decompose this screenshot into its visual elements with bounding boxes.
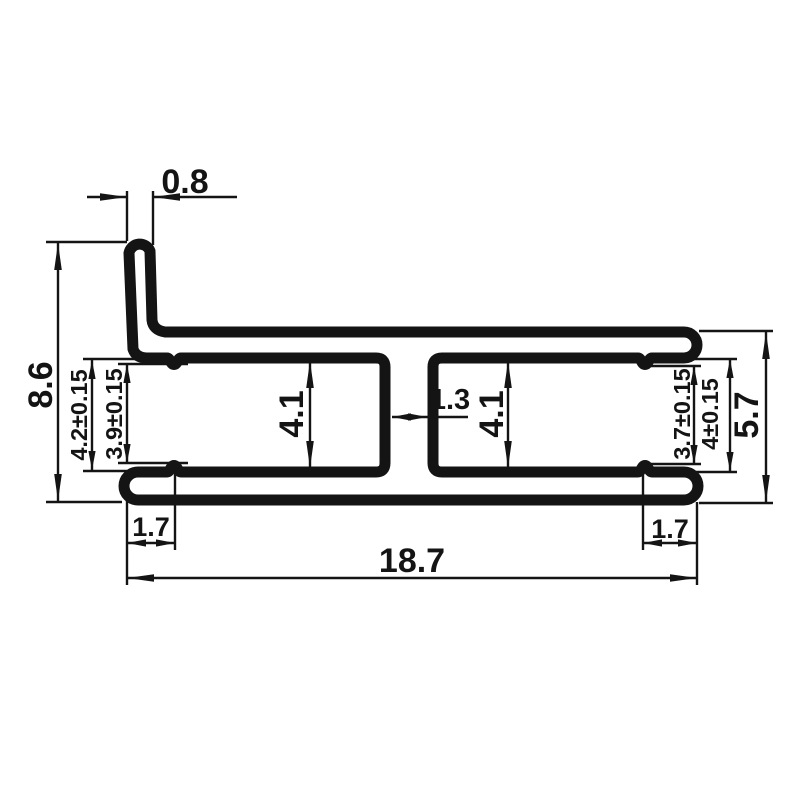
dimension-right-slot-inner: 3.7±0.15 [669,366,695,464]
dimension-left-cavity-height: 4.1 [273,361,311,468]
dimension-flange-width: 0.8 [87,163,237,201]
dimension-label: 4±0.15 [697,378,723,450]
profile-drawing-canvas: 0.8 8.6 4.2±0.15 3.9±0.15 4.1 1.3 4.1 3.… [0,0,800,800]
dimension-label: 3.9±0.15 [101,368,127,459]
dimension-label: 4.1 [273,390,311,437]
dimension-label: 1.3 [430,384,470,416]
dimension-total-height: 8.6 [22,243,60,501]
dimension-right-cavity-height: 4.1 [473,361,511,468]
dimension-label: 18.7 [379,542,445,580]
dimension-right-ridge-inset: 1.7 [643,514,697,544]
dimension-label: 3.7±0.15 [669,368,695,459]
dimension-label: 4.1 [473,390,511,437]
dimension-body-height: 5.7 [728,332,766,502]
dimension-left-ridge-inset: 1.7 [127,512,175,543]
dimension-left-slot-entry: 4.2±0.15 [66,360,92,470]
dimension-label: 1.7 [651,514,689,544]
dimension-right-slot-entry: 4±0.15 [697,359,730,471]
profile-outline [124,244,698,500]
dimension-left-slot-inner: 3.9±0.15 [101,364,127,463]
dimension-label: 1.7 [132,512,170,542]
dimension-total-width: 18.7 [127,542,697,580]
dimension-label: 8.6 [22,361,60,408]
dimension-label: 0.8 [161,163,208,201]
dimension-label: 5.7 [728,391,766,438]
dimension-label: 4.2±0.15 [66,369,92,460]
